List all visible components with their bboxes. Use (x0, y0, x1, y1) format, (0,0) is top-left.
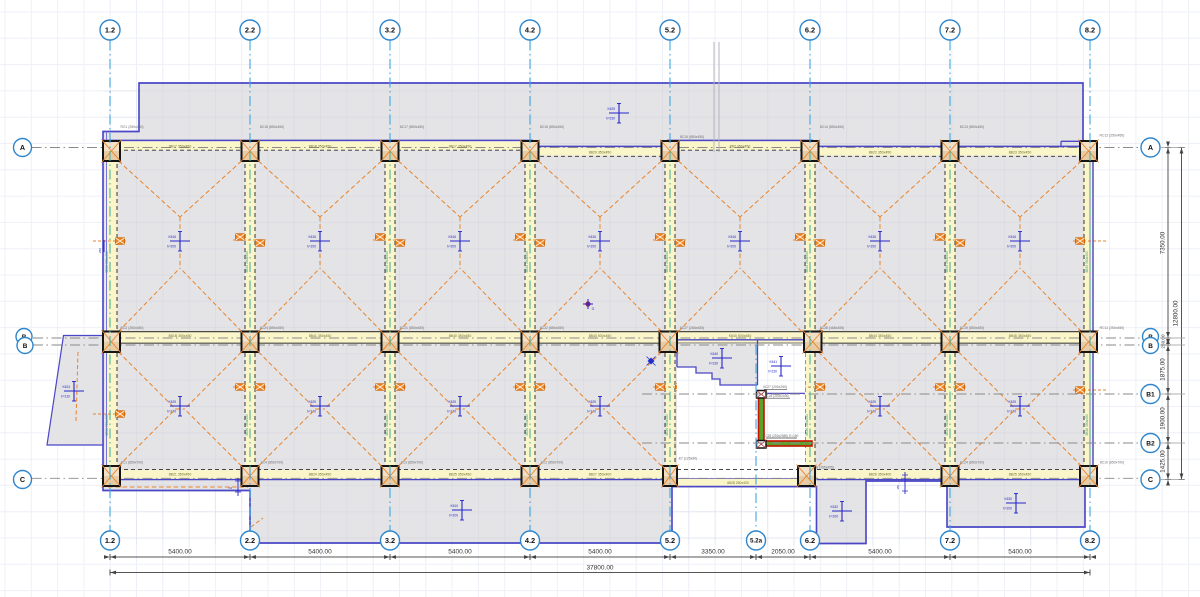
svg-text:8C21 (850x450): 8C21 (850x450) (400, 326, 424, 330)
svg-text:h=200: h=200 (1007, 245, 1016, 249)
svg-text:5B35 350x450: 5B35 350x450 (525, 251, 529, 272)
svg-text:5B36 350x450: 5B36 350x450 (665, 414, 669, 435)
svg-text:8B17 350x450: 8B17 350x450 (169, 145, 192, 149)
svg-text:250: 250 (98, 248, 102, 253)
svg-text:A: A (20, 143, 25, 152)
svg-text:h=200: h=200 (447, 245, 456, 249)
svg-text:2050.00: 2050.00 (771, 549, 795, 556)
svg-text:8C14 (850x450): 8C14 (850x450) (820, 125, 844, 129)
svg-text:h=200: h=200 (829, 515, 838, 519)
svg-text:RC1 (250x450): RC1 (250x450) (121, 125, 144, 129)
svg-text:A: A (1148, 143, 1153, 152)
svg-text:K540 500x450: K540 500x450 (729, 334, 752, 338)
svg-text:5.2: 5.2 (665, 536, 675, 545)
svg-text:7.2: 7.2 (945, 536, 955, 545)
svg-text:3350.00: 3350.00 (701, 549, 725, 556)
svg-text:5400.00: 5400.00 (168, 549, 192, 556)
svg-text:RC11 (250x450): RC11 (250x450) (1100, 326, 1125, 330)
svg-text:7.2: 7.2 (945, 26, 955, 35)
svg-text:8.2: 8.2 (1085, 536, 1095, 545)
svg-text:5B35 350x450: 5B35 350x450 (105, 251, 109, 272)
svg-text:6.2: 6.2 (805, 26, 815, 35)
svg-text:K629: K629 (169, 400, 177, 404)
svg-text:8C3 (850x700): 8C3 (850x700) (401, 461, 423, 465)
svg-text:5B35 350x450: 5B35 350x450 (945, 251, 949, 272)
svg-text:K610: K610 (451, 504, 459, 508)
svg-text:1425.00: 1425.00 (1160, 450, 1167, 473)
svg-text:5B36 350x450: 5B36 350x450 (105, 414, 109, 435)
svg-text:8B17 350x450: 8B17 350x450 (449, 145, 472, 149)
svg-text:5B35 350x450: 5B35 350x450 (1085, 251, 1089, 272)
svg-text:8B41 350x450: 8B41 350x450 (309, 334, 332, 338)
svg-text:250.00: 250.00 (1161, 334, 1166, 348)
svg-text:8C24 (850x700): 8C24 (850x700) (960, 461, 984, 465)
svg-text:B2: B2 (1146, 440, 1155, 447)
svg-text:8B25 350x450: 8B25 350x450 (449, 473, 472, 477)
svg-text:RC2 (250x450): RC2 (250x450) (121, 326, 144, 330)
svg-text:h=230: h=230 (709, 362, 718, 366)
svg-text:K7 (125x90): K7 (125x90) (679, 457, 697, 461)
svg-text:B: B (1148, 343, 1153, 350)
svg-text:5.2: 5.2 (665, 26, 675, 35)
svg-text:5400.00: 5400.00 (448, 549, 472, 556)
svg-text:5400.00: 5400.00 (588, 549, 612, 556)
svg-text:K616: K616 (729, 235, 737, 239)
svg-text:5400.00: 5400.00 (308, 549, 332, 556)
svg-text:K616: K616 (169, 235, 177, 239)
svg-text:K629: K629 (589, 400, 597, 404)
svg-text:8B26 350x400: 8B26 350x400 (869, 473, 892, 477)
svg-text:8C16 (850x450): 8C16 (850x450) (540, 125, 564, 129)
svg-text:12800.00: 12800.00 (1173, 300, 1180, 326)
svg-text:K616: K616 (1009, 235, 1017, 239)
svg-text:5B35 350x450: 5B35 350x450 (665, 251, 669, 272)
svg-text:37800.00: 37800.00 (586, 565, 613, 572)
svg-text:K616: K616 (869, 235, 877, 239)
svg-text:8B23 350x450: 8B23 350x450 (1009, 151, 1032, 155)
svg-text:8C13 (850x450): 8C13 (850x450) (960, 125, 984, 129)
svg-text:5400.00: 5400.00 (1008, 549, 1032, 556)
svg-text:5C27 (265x455): 5C27 (265x455) (680, 326, 704, 330)
svg-text:3.2: 3.2 (385, 536, 395, 545)
svg-text:1875.00: 1875.00 (1160, 358, 1167, 381)
svg-text:8B45 350x450: 8B45 350x450 (1009, 334, 1032, 338)
svg-text:h=120: h=120 (61, 395, 70, 399)
svg-text:h=170: h=170 (587, 410, 596, 414)
svg-text:h=230: h=230 (768, 370, 777, 374)
svg-text:5.2a: 5.2a (750, 538, 763, 545)
svg-text:5B36 350x450: 5B36 350x450 (1085, 414, 1089, 435)
svg-text:8C24 (850x450): 8C24 (850x450) (260, 326, 284, 330)
svg-text:1.2: 1.2 (105, 536, 115, 545)
svg-text:K616: K616 (449, 235, 457, 239)
svg-text:6828 250x400: 6828 250x400 (727, 481, 749, 485)
svg-text:5B36 350x450: 5B36 350x450 (245, 414, 249, 435)
svg-text:5B35 350x450: 5B35 350x450 (385, 251, 389, 272)
svg-text:8B40 500x450: 8B40 500x450 (589, 334, 612, 338)
svg-text:8C2 (850x700): 8C2 (850x700) (541, 461, 563, 465)
svg-text:K630: K630 (1005, 497, 1013, 501)
svg-text:1.2: 1.2 (105, 26, 115, 35)
svg-text:h=200: h=200 (1003, 507, 1012, 511)
svg-text:8.2: 8.2 (1085, 26, 1095, 35)
svg-text:5B36 350x450: 5B36 350x450 (525, 414, 529, 435)
svg-text:K629: K629 (449, 400, 457, 404)
svg-text:RC12 (250x450): RC12 (250x450) (1100, 134, 1125, 138)
svg-text:5B36 350x450: 5B36 350x450 (945, 414, 949, 435)
svg-text:5B35 350x450: 5B35 350x450 (805, 251, 809, 272)
svg-text:2.2: 2.2 (245, 536, 255, 545)
svg-text:7350.00: 7350.00 (1160, 231, 1167, 254)
svg-text:h=200: h=200 (167, 245, 176, 249)
svg-text:K632: K632 (831, 505, 839, 509)
svg-text:h=200: h=200 (307, 245, 316, 249)
svg-text:h=170: h=170 (167, 410, 176, 414)
svg-text:8B44 350x450: 8B44 350x450 (869, 334, 892, 338)
svg-text:5C28 (465x455): 5C28 (465x455) (820, 326, 844, 330)
svg-text:8C10 (850x700): 8C10 (850x700) (1100, 461, 1124, 465)
svg-text:h=200: h=200 (587, 245, 596, 249)
svg-text:5400.00: 5400.00 (868, 549, 892, 556)
svg-text:K640: K640 (711, 352, 719, 356)
svg-text:K641: K641 (770, 360, 778, 364)
svg-text:5B36 350x450: 5B36 350x450 (805, 414, 809, 435)
svg-text:8B25 350x450: 8B25 350x450 (1009, 473, 1032, 477)
svg-text:1900.00: 1900.00 (1160, 407, 1167, 430)
svg-text:K625: K625 (608, 107, 616, 111)
svg-text:8C1 (850x700): 8C1 (850x700) (121, 461, 143, 465)
svg-text:8B24 350x450: 8B24 350x450 (309, 473, 332, 477)
svg-text:G: G (592, 307, 595, 311)
svg-text:K624: K624 (63, 385, 71, 389)
svg-text:6.2: 6.2 (805, 536, 815, 545)
svg-text:8B18 350x450: 8B18 350x450 (309, 145, 332, 149)
svg-text:4C27 (200x250): 4C27 (200x250) (763, 385, 787, 389)
svg-text:K3: K3 (229, 486, 233, 490)
svg-text:K616: K616 (589, 235, 597, 239)
svg-text:h=170: h=170 (1007, 410, 1016, 414)
svg-text:h=200: h=200 (449, 514, 458, 518)
svg-text:8C15 (850x450): 8C15 (850x450) (680, 135, 704, 139)
svg-text:B1: B1 (1146, 391, 1155, 398)
svg-text:8C19 (850x450): 8C19 (850x450) (960, 326, 984, 330)
svg-text:8B2 350x450: 8B2 350x450 (730, 145, 751, 149)
svg-text:8B27 350x400: 8B27 350x400 (589, 473, 612, 477)
svg-text:2.2: 2.2 (245, 26, 255, 35)
svg-text:K629: K629 (1009, 400, 1017, 404)
svg-text:h=230: h=230 (606, 117, 615, 121)
svg-text:5B36 350x450: 5B36 350x450 (385, 414, 389, 435)
svg-text:4C28 (250x2500): 4C28 (250x2500) (765, 394, 790, 398)
svg-text:h=170: h=170 (447, 410, 456, 414)
svg-text:4.2: 4.2 (525, 536, 535, 545)
svg-text:h=200: h=200 (727, 245, 736, 249)
svg-text:h=200: h=200 (867, 245, 876, 249)
svg-text:8C17 (850x450): 8C17 (850x450) (400, 125, 424, 129)
svg-text:8B1B 350x450: 8B1B 350x450 (169, 334, 192, 338)
svg-text:3.2: 3.2 (385, 26, 395, 35)
svg-text:5B35 350x450: 5B35 350x450 (245, 251, 249, 272)
svg-text:8C22 (850x450): 8C22 (850x450) (540, 326, 564, 330)
svg-text:8C18 (850x450): 8C18 (850x450) (260, 125, 284, 129)
svg-text:4C28 (250x2580) E=150: 4C28 (250x2580) E=150 (764, 434, 799, 438)
svg-text:h=170: h=170 (867, 410, 876, 414)
svg-text:K629: K629 (309, 400, 317, 404)
svg-text:C: C (20, 475, 25, 484)
svg-text:K616: K616 (309, 235, 317, 239)
svg-text:C: C (1148, 475, 1153, 484)
svg-text:B: B (23, 343, 28, 350)
svg-text:8B20 350x450: 8B20 350x450 (589, 151, 612, 155)
svg-text:8C4 (850x700): 8C4 (850x700) (261, 461, 283, 465)
svg-text:h=170: h=170 (307, 410, 316, 414)
svg-text:K629: K629 (869, 400, 877, 404)
svg-text:8B40 350x450: 8B40 350x450 (449, 334, 472, 338)
svg-text:4.2: 4.2 (525, 26, 535, 35)
svg-text:8B22 350x450: 8B22 350x450 (869, 151, 892, 155)
svg-text:8B21 350x450: 8B21 350x450 (169, 473, 192, 477)
svg-text:150: 150 (896, 485, 900, 490)
